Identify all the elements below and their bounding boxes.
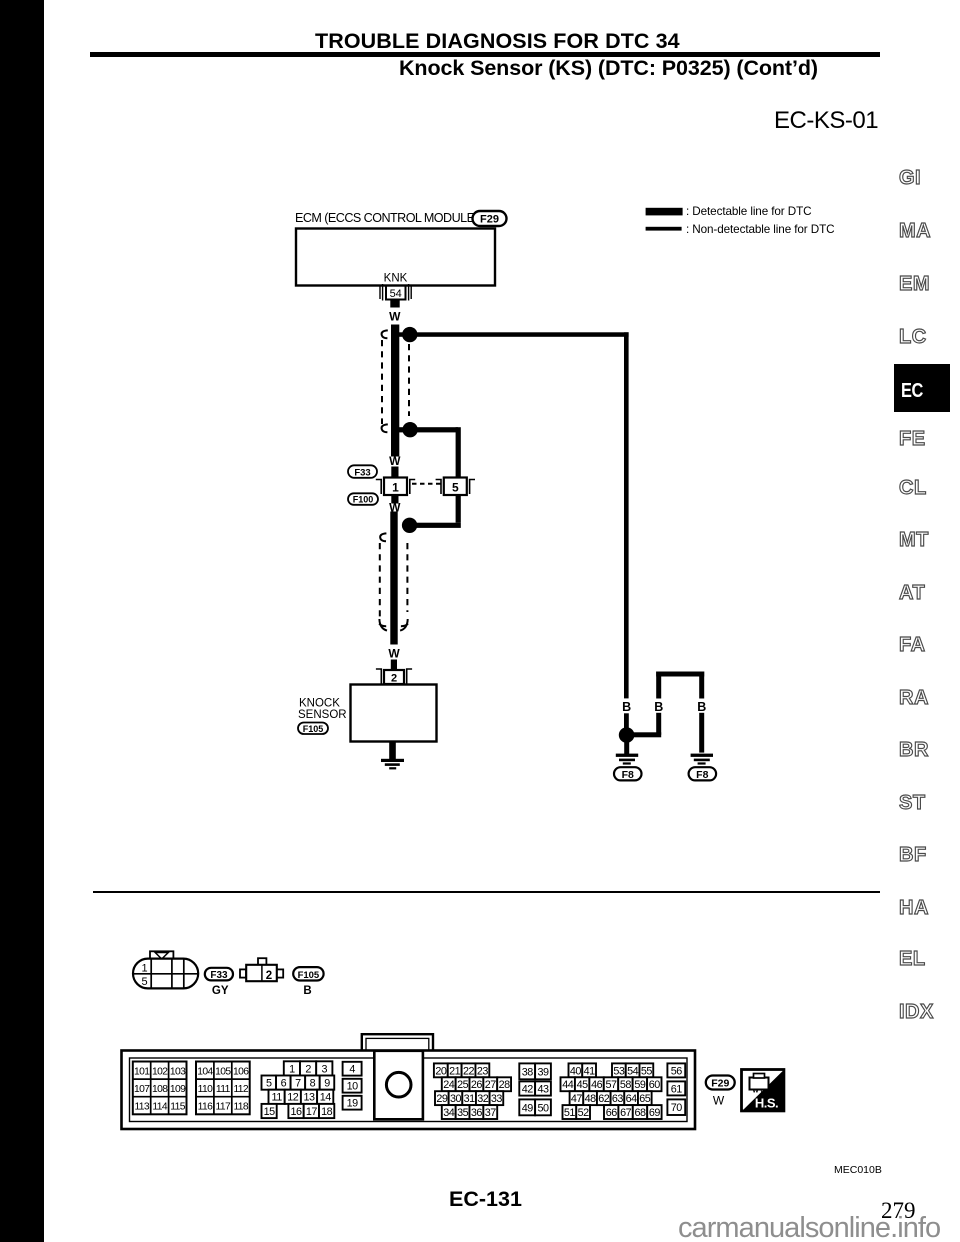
- svg-text:5: 5: [142, 976, 148, 988]
- svg-text:3: 3: [322, 1063, 328, 1075]
- svg-text:1: 1: [289, 1063, 295, 1075]
- svg-text:105: 105: [215, 1066, 231, 1077]
- svg-text:32: 32: [477, 1093, 489, 1105]
- svg-text:18: 18: [321, 1106, 333, 1118]
- svg-text:F29: F29: [480, 214, 499, 226]
- svg-text:KNOCK: KNOCK: [299, 698, 340, 710]
- svg-text:15: 15: [264, 1106, 276, 1118]
- svg-text:66: 66: [606, 1107, 618, 1119]
- svg-text:25: 25: [457, 1079, 469, 1091]
- svg-text:ECM (ECCS CONTROL MODULE): ECM (ECCS CONTROL MODULE): [295, 211, 478, 225]
- svg-text:114: 114: [152, 1102, 167, 1113]
- svg-text:38: 38: [522, 1066, 534, 1078]
- svg-text:2: 2: [305, 1063, 311, 1075]
- svg-text:53: 53: [613, 1065, 625, 1077]
- svg-text:F8: F8: [622, 769, 634, 781]
- svg-text:F105: F105: [303, 724, 324, 734]
- svg-text:F33: F33: [210, 970, 228, 981]
- svg-text:F100: F100: [353, 495, 374, 505]
- svg-text:33: 33: [491, 1093, 503, 1105]
- svg-text:113: 113: [134, 1102, 149, 1113]
- svg-text:4: 4: [349, 1064, 355, 1076]
- svg-text:13: 13: [303, 1092, 315, 1104]
- svg-text:21: 21: [449, 1065, 461, 1077]
- svg-text:37: 37: [485, 1107, 497, 1119]
- svg-text:64: 64: [626, 1093, 638, 1105]
- svg-text:34: 34: [443, 1107, 455, 1119]
- svg-text:GY: GY: [212, 985, 229, 997]
- svg-text:41: 41: [584, 1065, 596, 1077]
- svg-text:36: 36: [471, 1107, 483, 1119]
- svg-text:107: 107: [134, 1084, 150, 1095]
- svg-text:104: 104: [197, 1066, 213, 1077]
- svg-text:B: B: [622, 700, 631, 714]
- svg-text:SENSOR: SENSOR: [298, 709, 347, 721]
- svg-text:44: 44: [562, 1079, 574, 1091]
- svg-text:101: 101: [134, 1066, 150, 1077]
- svg-text:70: 70: [671, 1102, 683, 1114]
- svg-text:43: 43: [537, 1083, 549, 1095]
- svg-text:62: 62: [598, 1093, 610, 1105]
- svg-text:12: 12: [287, 1092, 299, 1104]
- svg-text:B: B: [303, 985, 311, 997]
- svg-text:8: 8: [310, 1078, 316, 1090]
- svg-text:109: 109: [170, 1084, 186, 1095]
- svg-text:w: w: [752, 1086, 759, 1095]
- svg-text:2: 2: [266, 970, 272, 982]
- svg-text:110: 110: [198, 1084, 213, 1095]
- svg-text:54: 54: [390, 288, 402, 300]
- svg-text:9: 9: [324, 1078, 330, 1090]
- svg-text:F33: F33: [354, 467, 370, 478]
- svg-text:115: 115: [170, 1102, 185, 1113]
- svg-text:117: 117: [216, 1102, 231, 1113]
- svg-text:47: 47: [571, 1093, 583, 1105]
- svg-text:7: 7: [295, 1078, 301, 1090]
- svg-text:27: 27: [485, 1079, 497, 1091]
- svg-text:B: B: [697, 700, 706, 714]
- svg-text:52: 52: [578, 1107, 590, 1119]
- svg-text:40: 40: [570, 1065, 582, 1077]
- svg-text:W: W: [389, 454, 401, 468]
- svg-text:54: 54: [627, 1065, 639, 1077]
- svg-text:5: 5: [452, 481, 459, 495]
- svg-text:W: W: [713, 1094, 725, 1108]
- svg-text:112: 112: [233, 1084, 248, 1095]
- svg-text:65: 65: [639, 1093, 651, 1105]
- svg-text:63: 63: [612, 1093, 624, 1105]
- svg-text:: Detectable line for DTC: : Detectable line for DTC: [686, 205, 811, 218]
- svg-text:24: 24: [443, 1079, 455, 1091]
- svg-text:68: 68: [634, 1107, 646, 1119]
- svg-text:50: 50: [537, 1102, 549, 1114]
- svg-text:20: 20: [435, 1065, 447, 1077]
- svg-text:60: 60: [649, 1079, 661, 1091]
- svg-text:17: 17: [306, 1106, 318, 1118]
- svg-text:58: 58: [620, 1079, 632, 1091]
- svg-text:55: 55: [641, 1065, 653, 1077]
- svg-text:102: 102: [152, 1066, 168, 1077]
- svg-text:F105: F105: [298, 970, 320, 981]
- svg-text:29: 29: [436, 1093, 448, 1105]
- svg-text:5: 5: [266, 1078, 272, 1090]
- svg-text:46: 46: [591, 1079, 603, 1091]
- svg-text:45: 45: [577, 1079, 589, 1091]
- svg-text:11: 11: [271, 1092, 282, 1104]
- svg-text:28: 28: [499, 1079, 511, 1091]
- svg-text:116: 116: [198, 1102, 213, 1113]
- svg-text:W: W: [388, 647, 400, 661]
- svg-text:1: 1: [142, 962, 148, 974]
- svg-text:W: W: [389, 501, 401, 515]
- svg-text:111: 111: [216, 1084, 231, 1095]
- svg-text:51: 51: [564, 1107, 576, 1119]
- svg-text:KNK: KNK: [384, 273, 408, 285]
- svg-text:H.S.: H.S.: [755, 1096, 778, 1111]
- svg-text:103: 103: [170, 1066, 186, 1077]
- svg-text:16: 16: [291, 1106, 303, 1118]
- svg-text:69: 69: [649, 1107, 661, 1119]
- svg-text:: Non-detectable line for DTC: : Non-detectable line for DTC: [686, 223, 834, 236]
- svg-text:56: 56: [671, 1065, 683, 1077]
- svg-text:106: 106: [233, 1066, 249, 1077]
- svg-text:22: 22: [463, 1065, 475, 1077]
- svg-text:42: 42: [522, 1083, 534, 1095]
- svg-text:48: 48: [585, 1093, 597, 1105]
- svg-text:F29: F29: [711, 1078, 729, 1090]
- svg-text:23: 23: [477, 1065, 489, 1077]
- svg-text:26: 26: [471, 1079, 483, 1091]
- svg-text:59: 59: [634, 1079, 646, 1091]
- svg-text:39: 39: [537, 1066, 549, 1078]
- svg-text:31: 31: [464, 1093, 476, 1105]
- svg-text:14: 14: [320, 1092, 332, 1104]
- svg-text:1: 1: [392, 481, 399, 495]
- svg-text:108: 108: [152, 1084, 168, 1095]
- svg-text:67: 67: [620, 1107, 632, 1119]
- svg-text:w: w: [760, 1087, 767, 1096]
- svg-text:W: W: [389, 310, 401, 324]
- svg-text:118: 118: [233, 1102, 248, 1113]
- svg-text:19: 19: [347, 1098, 359, 1110]
- svg-text:6: 6: [281, 1078, 287, 1090]
- svg-text:49: 49: [522, 1102, 534, 1114]
- svg-text:35: 35: [457, 1107, 469, 1119]
- svg-text:57: 57: [605, 1079, 617, 1091]
- svg-text:B: B: [654, 700, 663, 714]
- svg-text:10: 10: [347, 1081, 359, 1093]
- svg-text:F8: F8: [696, 769, 708, 781]
- svg-text:61: 61: [671, 1083, 683, 1095]
- svg-text:30: 30: [450, 1093, 462, 1105]
- svg-text:2: 2: [391, 673, 397, 685]
